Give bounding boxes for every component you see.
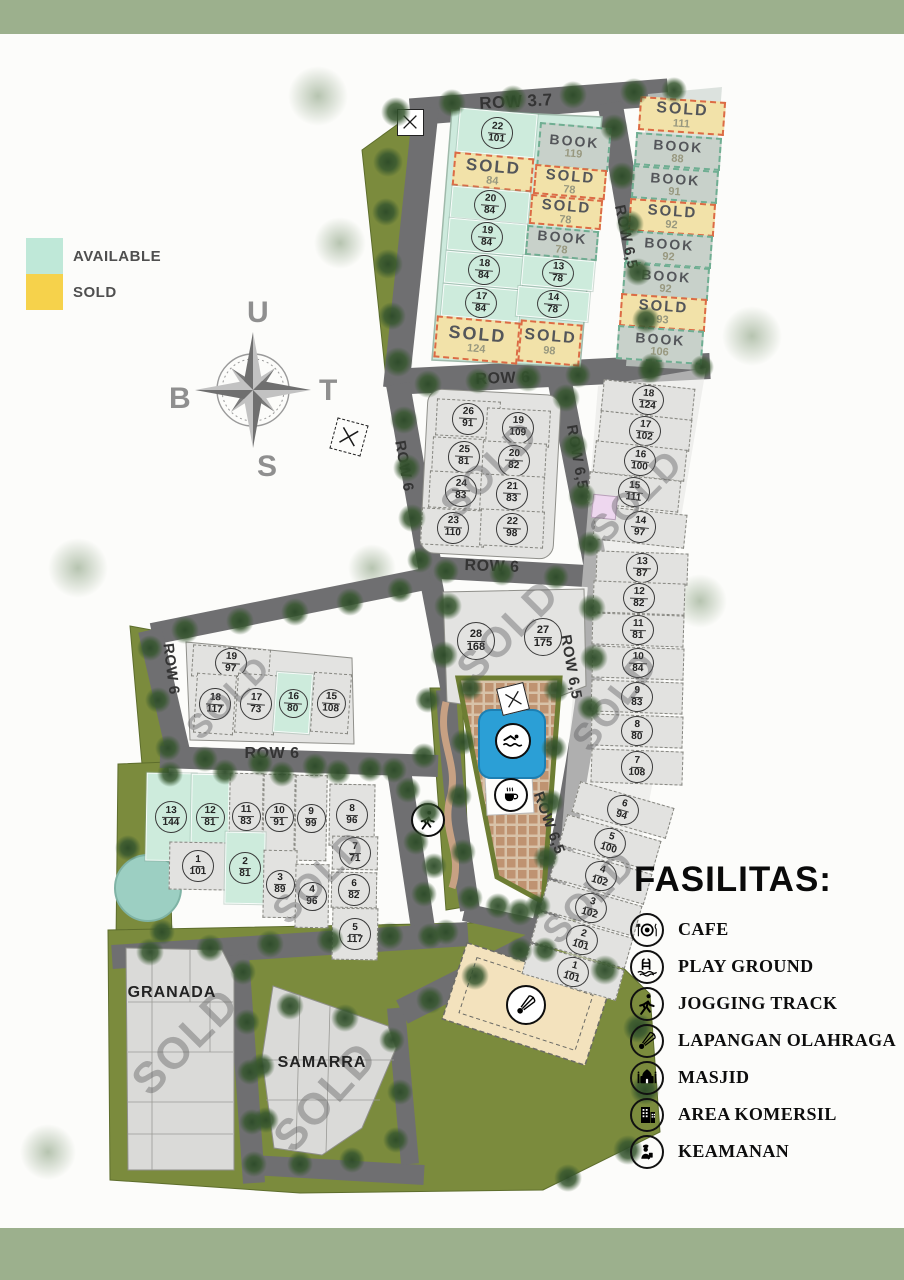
facility-label: LAPANGAN OLAHRAGA — [678, 1030, 896, 1051]
coffee-icon — [494, 778, 528, 812]
compass-rose-icon: U T S B — [153, 290, 353, 490]
facility-row-jogging: JOGGING TRACK — [630, 988, 904, 1019]
facility-label: KEAMANAN — [678, 1141, 789, 1162]
gate-marker-icon — [397, 109, 424, 136]
facility-label: AREA KOMERSIL — [678, 1104, 837, 1125]
compass-west-label: B — [169, 382, 191, 415]
available-swatch — [26, 238, 63, 274]
facility-row-sport-field: LAPANGAN OLAHRAGA — [630, 1025, 904, 1056]
playground-icon — [630, 950, 664, 984]
commercial-icon — [630, 1098, 664, 1132]
facility-label: CAFE — [678, 919, 729, 940]
facility-row-cafe: CAFE — [630, 914, 904, 945]
jogging-runner-icon — [411, 803, 445, 837]
facility-row-commercial: AREA KOMERSIL — [630, 1099, 904, 1130]
jogging-icon — [630, 987, 664, 1021]
swimmer-icon — [495, 723, 531, 759]
facilities-panel: FASILITAS: CAFE PLAY GROUND JOGGING TRAC… — [630, 860, 904, 1173]
available-label: AVAILABLE — [73, 248, 161, 265]
compass-north-label: U — [247, 296, 269, 329]
facilities-title: FASILITAS: — [634, 860, 904, 900]
facility-label: PLAY GROUND — [678, 956, 814, 977]
sold-swatch — [26, 274, 63, 310]
security-icon — [630, 1135, 664, 1169]
facility-row-security: KEAMANAN — [630, 1136, 904, 1167]
sport-field-icon — [630, 1024, 664, 1058]
facility-row-mosque: MASJID — [630, 1062, 904, 1093]
facility-label: MASJID — [678, 1067, 749, 1088]
facility-row-playground: PLAY GROUND — [630, 951, 904, 982]
mosque-icon — [630, 1061, 664, 1095]
legend-row-sold: SOLD — [26, 274, 161, 310]
cafe-icon — [630, 913, 664, 947]
shuttlecock-icon — [506, 985, 546, 1025]
legend: AVAILABLE SOLD — [26, 238, 161, 310]
facility-label: JOGGING TRACK — [678, 993, 837, 1014]
legend-row-available: AVAILABLE — [26, 238, 161, 274]
sold-label: SOLD — [73, 284, 117, 301]
plaza-marker-icon — [496, 682, 530, 716]
siteplan-page: 22101SOLD842084198418841784SOLD124SOLD98… — [0, 0, 904, 1280]
compass-east-label: T — [319, 374, 337, 407]
compass-south-label: S — [257, 450, 277, 483]
